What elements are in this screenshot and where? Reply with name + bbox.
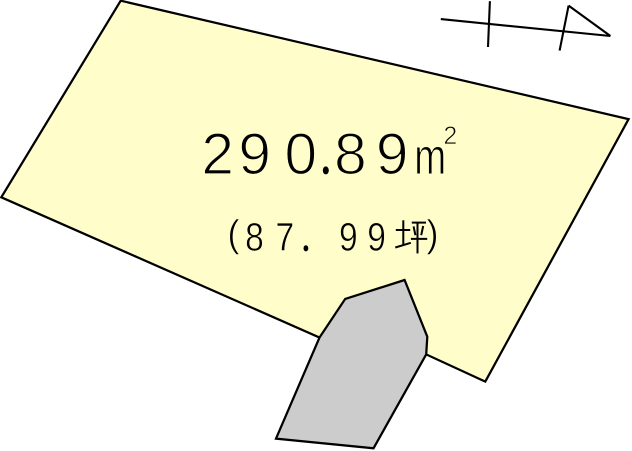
svg-text:2: 2 — [201, 122, 234, 187]
svg-text:m: m — [414, 128, 446, 186]
svg-text:9: 9 — [238, 122, 271, 187]
svg-text:(: ( — [227, 212, 240, 255]
svg-text:7: 7 — [276, 215, 295, 259]
svg-text:2: 2 — [443, 122, 457, 150]
svg-text:0: 0 — [285, 122, 318, 187]
svg-text:9: 9 — [339, 215, 358, 259]
svg-text:8: 8 — [334, 122, 367, 187]
svg-text:8: 8 — [245, 215, 264, 259]
svg-text:9: 9 — [376, 122, 409, 187]
svg-text:): ) — [426, 212, 438, 255]
svg-text:9: 9 — [367, 215, 386, 259]
